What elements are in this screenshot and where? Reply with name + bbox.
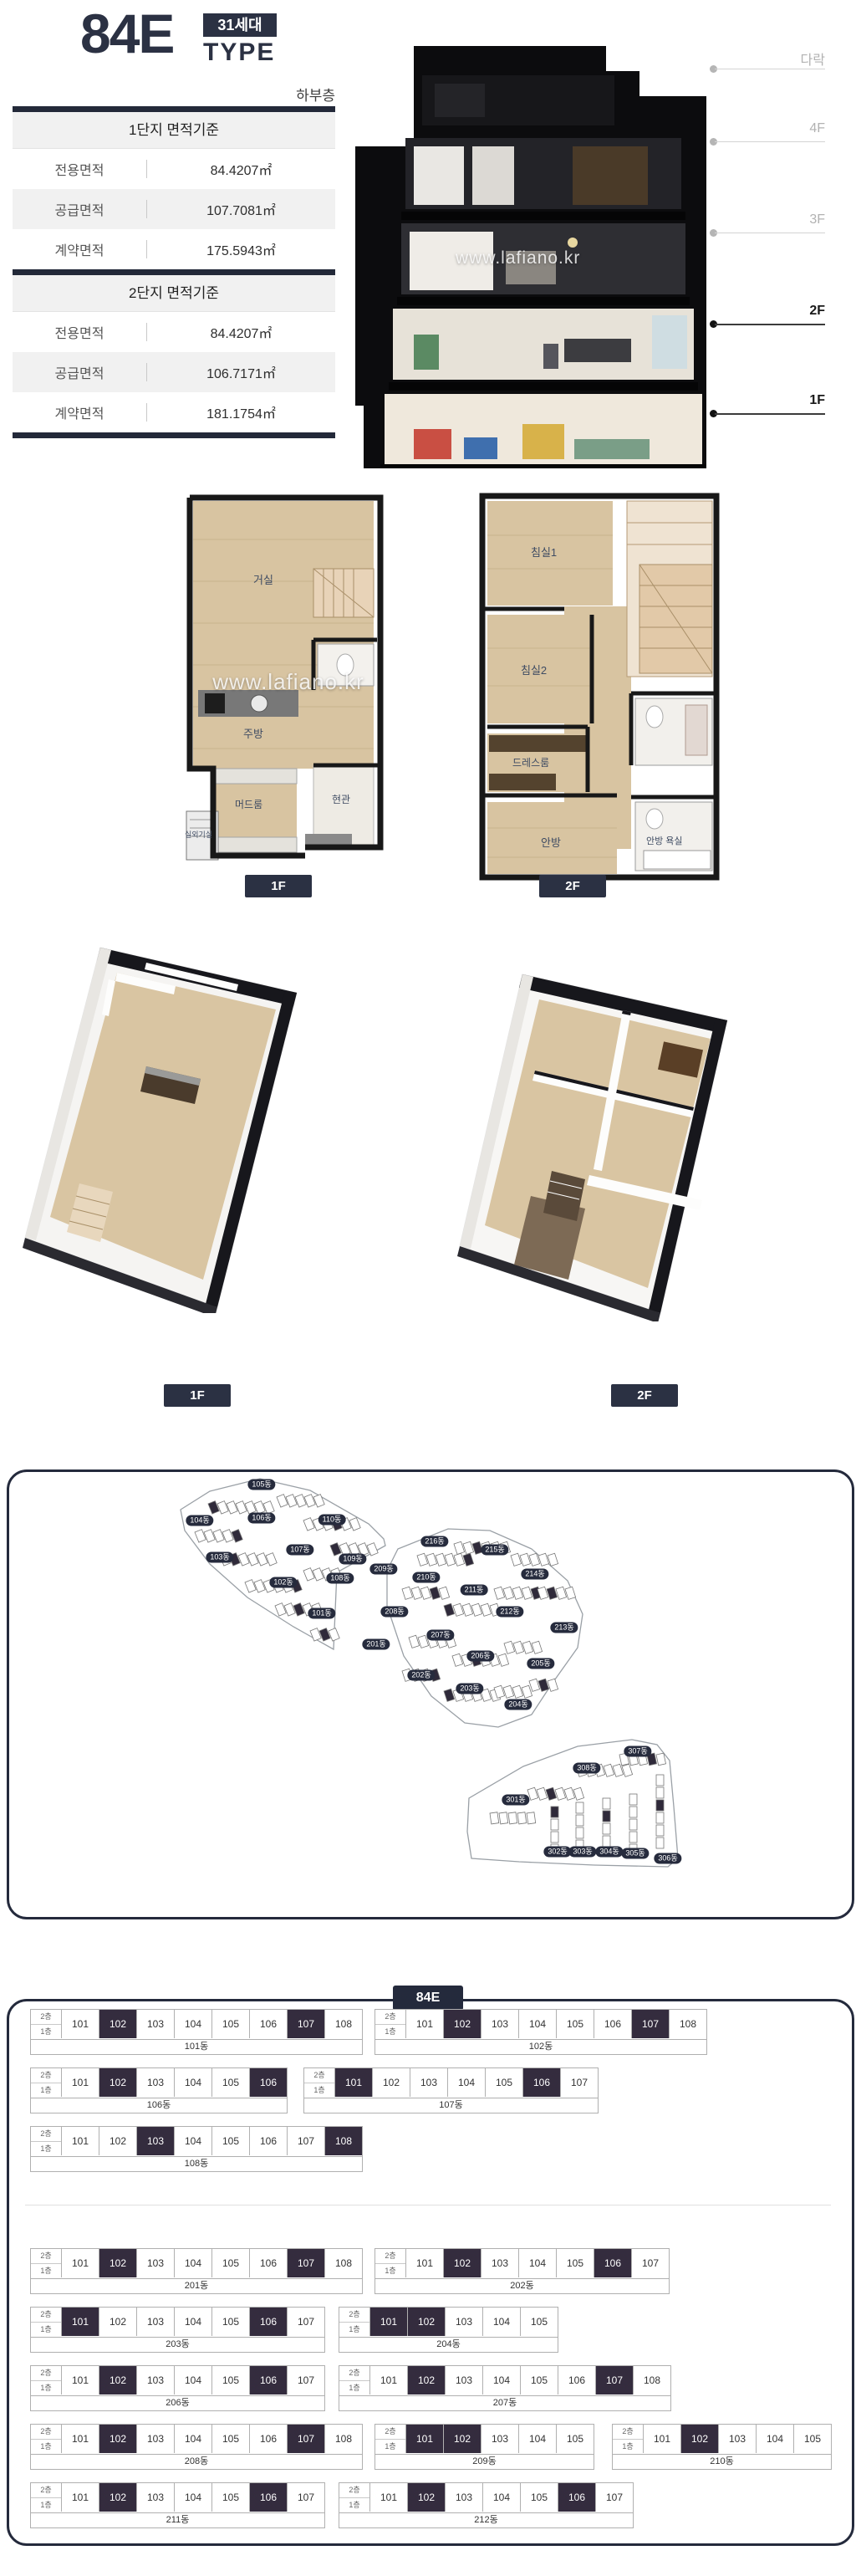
building-name: 107동 bbox=[304, 2098, 598, 2113]
unit-cell-108동-101: 101 bbox=[61, 2127, 99, 2155]
unit-cell-108동-103: 103 bbox=[136, 2127, 174, 2155]
building-name: 106동 bbox=[31, 2098, 287, 2113]
room-label-master: 안방 bbox=[541, 834, 561, 850]
site-map: 105동104동106동110동103동107동109동108동102동101동… bbox=[7, 1469, 854, 1919]
lower-floor-label: 하부층 bbox=[13, 84, 335, 105]
building-badge-105동: 105동 bbox=[247, 1480, 275, 1490]
unit-cell-108동-107: 107 bbox=[287, 2127, 324, 2155]
building-badge-101동: 101동 bbox=[308, 1608, 335, 1619]
building-badge-303동: 303동 bbox=[568, 1847, 596, 1858]
floorplan-2d-2f: 침실1 침실2 드레스룸 안방 안방 욕실 bbox=[472, 489, 727, 884]
unit-table-211동: 2층1층101102103104105106107211동 bbox=[30, 2482, 325, 2528]
unit-cell-106동-106: 106 bbox=[249, 2068, 287, 2097]
area-label: 전용면적 bbox=[13, 159, 146, 179]
floorplan-2d-1f: 거실 주방 머드룸 실외기실 현관 www.lafiano.kr bbox=[180, 489, 389, 882]
unit-cell-102동-105: 105 bbox=[556, 2010, 594, 2038]
type-label: TYPE bbox=[203, 38, 275, 67]
table-bottom-bar bbox=[13, 432, 335, 438]
building-badge-305동: 305동 bbox=[621, 1848, 649, 1859]
unit-cell-101동-104: 104 bbox=[174, 2010, 211, 2038]
unit-cell-212동-105: 105 bbox=[520, 2483, 558, 2512]
unit-cell-108동-105: 105 bbox=[211, 2127, 249, 2155]
floorplan-3d-2f bbox=[451, 962, 853, 1321]
building-badge-302동: 302동 bbox=[543, 1847, 571, 1858]
building-badge-208동: 208동 bbox=[380, 1607, 408, 1618]
unit-cell-206동-103: 103 bbox=[136, 2366, 174, 2395]
unit-table-201동: 2층1층101102103104105106107108201동 bbox=[30, 2248, 363, 2294]
unit-cell-203동-105: 105 bbox=[211, 2308, 249, 2336]
area-label: 공급면적 bbox=[13, 362, 146, 382]
building-badge-304동: 304동 bbox=[595, 1847, 623, 1858]
floor-labels: 2층1층 bbox=[375, 2010, 405, 2039]
unit-cell-210동-103: 103 bbox=[718, 2425, 756, 2453]
unit-cell-201동-103: 103 bbox=[136, 2249, 174, 2277]
unit-table-203동: 2층1층101102103104105106107203동 bbox=[30, 2307, 325, 2353]
floor-labels: 2층1층 bbox=[31, 2068, 61, 2098]
building-badge-106동: 106동 bbox=[247, 1513, 275, 1524]
unit-cell-202동-102: 102 bbox=[443, 2249, 481, 2277]
unit-cell-101동-107: 107 bbox=[287, 2010, 324, 2038]
unit-table-202동: 2층1층101102103104105106107202동 bbox=[374, 2248, 670, 2294]
unit-cell-204동-102: 102 bbox=[407, 2308, 445, 2336]
area-value: 181.1754㎡ bbox=[147, 402, 335, 422]
unit-count-badge: 31세대 bbox=[203, 13, 277, 37]
unit-table-208동: 2층1층101102103104105106107108208동 bbox=[30, 2424, 363, 2470]
area-value: 106.7171㎡ bbox=[147, 362, 335, 382]
floorplan-2f-drawing bbox=[472, 489, 727, 884]
unit-table-107동: 2층1층101102103104105106107107동 bbox=[303, 2067, 599, 2113]
room-label-entrance: 현관 bbox=[332, 792, 350, 806]
building-name: 108동 bbox=[31, 2156, 362, 2171]
unit-cell-212동-104: 104 bbox=[482, 2483, 520, 2512]
unit-cell-206동-101: 101 bbox=[61, 2366, 99, 2395]
floor-labels: 2층1층 bbox=[31, 2010, 61, 2039]
floor-labels: 2층1층 bbox=[304, 2068, 334, 2098]
building-badge-202동: 202동 bbox=[407, 1670, 435, 1681]
area-table: 1단지 면적기준 전용면적84.4207㎡ 공급면적107.7081㎡ 계약면적… bbox=[13, 106, 335, 438]
unit-cell-106동-104: 104 bbox=[174, 2068, 211, 2097]
unit-cell-102동-107: 107 bbox=[631, 2010, 669, 2038]
area-value: 175.5943㎡ bbox=[147, 239, 335, 259]
unit-cell-207동-106: 106 bbox=[558, 2366, 595, 2395]
area-heading-complex1: 1단지 면적기준 bbox=[13, 112, 335, 149]
building-badge-109동: 109동 bbox=[339, 1554, 366, 1565]
unit-cell-208동-104: 104 bbox=[174, 2425, 211, 2453]
unit-cell-204동-101: 101 bbox=[369, 2308, 407, 2336]
watermark: www.lafiano.kr bbox=[171, 669, 405, 695]
building-name: 210동 bbox=[613, 2454, 831, 2469]
floor-labels: 2층1층 bbox=[31, 2127, 61, 2156]
floor-labels: 2층1층 bbox=[31, 2483, 61, 2512]
room-label-dress: 드레스룸 bbox=[512, 755, 549, 769]
building-badge-210동: 210동 bbox=[412, 1572, 440, 1583]
plan-2f-badge: 2F bbox=[539, 875, 606, 897]
plan-1f-badge: 1F bbox=[245, 875, 312, 897]
unit-cell-201동-107: 107 bbox=[287, 2249, 324, 2277]
room-label-master-bath: 안방 욕실 bbox=[646, 834, 683, 847]
unit-table-212동: 2층1층101102103104105106107212동 bbox=[339, 2482, 634, 2528]
building-badge-213동: 213동 bbox=[550, 1623, 578, 1633]
unit-cell-211동-101: 101 bbox=[61, 2483, 99, 2512]
building-badge-107동: 107동 bbox=[286, 1545, 313, 1556]
building-name: 211동 bbox=[31, 2512, 324, 2527]
building-badge-215동: 215동 bbox=[481, 1545, 508, 1556]
unit-table-204동: 2층1층101102103104105204동 bbox=[339, 2307, 558, 2353]
unit-cell-203동-104: 104 bbox=[174, 2308, 211, 2336]
unit-cell-208동-102: 102 bbox=[99, 2425, 136, 2453]
building-badge-206동: 206동 bbox=[466, 1651, 494, 1662]
unit-cell-203동-102: 102 bbox=[99, 2308, 136, 2336]
unit-cell-108동-106: 106 bbox=[249, 2127, 287, 2155]
room-label-bed2: 침실2 bbox=[521, 662, 547, 677]
unit-cell-212동-101: 101 bbox=[369, 2483, 407, 2512]
unit-cell-211동-107: 107 bbox=[287, 2483, 324, 2512]
area-value: 84.4207㎡ bbox=[147, 322, 335, 342]
building-badge-201동: 201동 bbox=[362, 1639, 390, 1650]
unit-cell-207동-102: 102 bbox=[407, 2366, 445, 2395]
floor-labels: 2층1층 bbox=[31, 2249, 61, 2278]
building-badge-110동: 110동 bbox=[318, 1515, 346, 1526]
unit-cell-206동-107: 107 bbox=[287, 2366, 324, 2395]
building-name: 204동 bbox=[339, 2337, 558, 2352]
building-badge-214동: 214동 bbox=[521, 1569, 548, 1580]
unit-table-206동: 2층1층101102103104105106107206동 bbox=[30, 2365, 325, 2411]
watermark: www.lafiano.kr bbox=[456, 248, 580, 268]
floor-labels: 2층1층 bbox=[375, 2425, 405, 2454]
building-badge-307동: 307동 bbox=[624, 1746, 651, 1757]
unit-cell-206동-105: 105 bbox=[211, 2366, 249, 2395]
unit-cell-208동-103: 103 bbox=[136, 2425, 174, 2453]
unit-cell-106동-101: 101 bbox=[61, 2068, 99, 2097]
building-name: 102동 bbox=[375, 2039, 706, 2054]
floor-level-다락: 다락 bbox=[706, 49, 832, 74]
unit-cell-202동-101: 101 bbox=[405, 2249, 443, 2277]
unit-cell-207동-108: 108 bbox=[633, 2366, 670, 2395]
unit-cell-203동-103: 103 bbox=[136, 2308, 174, 2336]
building-badge-209동: 209동 bbox=[369, 1564, 397, 1575]
unit-cell-203동-106: 106 bbox=[249, 2308, 287, 2336]
unit-table-210동: 2층1층101102103104105210동 bbox=[612, 2424, 832, 2470]
unit-cell-209동-105: 105 bbox=[556, 2425, 594, 2453]
building-badge-216동: 216동 bbox=[420, 1536, 448, 1547]
unit-cell-101동-106: 106 bbox=[249, 2010, 287, 2038]
page: 84E 31세대 TYPE 하부층 1단지 면적기준 전용면적84.4207㎡ … bbox=[0, 0, 856, 2576]
unit-cell-202동-105: 105 bbox=[556, 2249, 594, 2277]
unit-cell-211동-106: 106 bbox=[249, 2483, 287, 2512]
unit-cell-212동-107: 107 bbox=[595, 2483, 633, 2512]
floor-labels: 2층1층 bbox=[31, 2366, 61, 2395]
floorplan-3d-1f bbox=[21, 941, 401, 1313]
building-badge-301동: 301동 bbox=[502, 1795, 529, 1806]
unit-cell-106동-102: 102 bbox=[99, 2068, 136, 2097]
unit-cell-212동-102: 102 bbox=[407, 2483, 445, 2512]
unit-cell-202동-103: 103 bbox=[481, 2249, 518, 2277]
unit-cell-101동-102: 102 bbox=[99, 2010, 136, 2038]
unit-cell-210동-104: 104 bbox=[756, 2425, 793, 2453]
area-label: 공급면적 bbox=[13, 199, 146, 219]
unit-cell-107동-102: 102 bbox=[372, 2068, 410, 2097]
room-label-mudroom: 머드룸 bbox=[235, 797, 262, 811]
building-badge-306동: 306동 bbox=[654, 1853, 681, 1864]
building-badge-205동: 205동 bbox=[527, 1659, 554, 1669]
unit-cell-211동-102: 102 bbox=[99, 2483, 136, 2512]
unit-cell-208동-106: 106 bbox=[249, 2425, 287, 2453]
unit-table-106동: 2층1층101102103104105106106동 bbox=[30, 2067, 288, 2113]
unit-table-209동: 2층1층101102103104105209동 bbox=[374, 2424, 594, 2470]
unit-cell-203동-107: 107 bbox=[287, 2308, 324, 2336]
unit-cell-208동-101: 101 bbox=[61, 2425, 99, 2453]
building-name: 206동 bbox=[31, 2395, 324, 2410]
unit-cell-204동-105: 105 bbox=[520, 2308, 558, 2336]
unit-cell-106동-105: 105 bbox=[211, 2068, 249, 2097]
unit-cell-204동-103: 103 bbox=[445, 2308, 482, 2336]
floor-labels: 2층1층 bbox=[613, 2425, 643, 2454]
building-badge-104동: 104동 bbox=[186, 1515, 213, 1526]
room-label-outdoor-unit: 실외기실 bbox=[185, 829, 212, 840]
area-label: 계약면적 bbox=[13, 402, 146, 422]
unit-cell-206동-106: 106 bbox=[249, 2366, 287, 2395]
unit-cell-202동-107: 107 bbox=[631, 2249, 669, 2277]
unit-cell-206동-102: 102 bbox=[99, 2366, 136, 2395]
floor-labels: 2층1층 bbox=[339, 2483, 369, 2512]
unit-cell-207동-103: 103 bbox=[445, 2366, 482, 2395]
building-badge-203동: 203동 bbox=[456, 1684, 483, 1694]
floor-labels: 2층1층 bbox=[339, 2308, 369, 2337]
unit-cell-107동-104: 104 bbox=[447, 2068, 485, 2097]
unit-cell-212동-103: 103 bbox=[445, 2483, 482, 2512]
unit-cell-201동-106: 106 bbox=[249, 2249, 287, 2277]
unit-cell-101동-101: 101 bbox=[61, 2010, 99, 2038]
unit-cell-101동-105: 105 bbox=[211, 2010, 249, 2038]
page-title: 84E bbox=[80, 2, 173, 65]
unit-table-102동: 2층1층101102103104105106107108102동 bbox=[374, 2009, 707, 2055]
table-top-bar bbox=[13, 106, 335, 112]
building-badge-102동: 102동 bbox=[269, 1577, 297, 1588]
floor-labels: 2층1층 bbox=[31, 2308, 61, 2337]
unit-cell-208동-105: 105 bbox=[211, 2425, 249, 2453]
floor-level-2F: 2F bbox=[706, 304, 832, 329]
unit-cell-208동-108: 108 bbox=[324, 2425, 362, 2453]
unit-cell-108동-104: 104 bbox=[174, 2127, 211, 2155]
unit-cell-107동-106: 106 bbox=[522, 2068, 560, 2097]
unit-cell-209동-101: 101 bbox=[405, 2425, 443, 2453]
floor-labels: 2층1층 bbox=[375, 2249, 405, 2278]
building-name: 203동 bbox=[31, 2337, 324, 2352]
unit-cell-210동-105: 105 bbox=[793, 2425, 831, 2453]
unit-cell-209동-104: 104 bbox=[518, 2425, 556, 2453]
unit-cell-211동-103: 103 bbox=[136, 2483, 174, 2512]
unit-cell-209동-102: 102 bbox=[443, 2425, 481, 2453]
unit-cell-102동-101: 101 bbox=[405, 2010, 443, 2038]
unit-cell-207동-105: 105 bbox=[520, 2366, 558, 2395]
building-name: 202동 bbox=[375, 2278, 669, 2293]
unit-cell-102동-102: 102 bbox=[443, 2010, 481, 2038]
floor-level-4F: 4F bbox=[706, 121, 832, 146]
unit-cell-207동-104: 104 bbox=[482, 2366, 520, 2395]
unit-table-101동: 2층1층101102103104105106107108101동 bbox=[30, 2009, 363, 2055]
building-badge-211동: 211동 bbox=[461, 1585, 488, 1596]
room-label-bed1: 침실1 bbox=[531, 544, 557, 560]
area-label: 전용면적 bbox=[13, 322, 146, 342]
availability-title-badge: 84E bbox=[393, 1986, 463, 2011]
floor-level-1F: 1F bbox=[706, 393, 832, 418]
unit-cell-209동-103: 103 bbox=[481, 2425, 518, 2453]
unit-cell-101동-103: 103 bbox=[136, 2010, 174, 2038]
building-name: 212동 bbox=[339, 2512, 633, 2527]
floor-labels: 2층1층 bbox=[339, 2366, 369, 2395]
unit-cell-106동-103: 103 bbox=[136, 2068, 174, 2097]
unit-cell-202동-106: 106 bbox=[594, 2249, 631, 2277]
floor-level-3F: 3F bbox=[706, 212, 832, 238]
unit-cell-212동-106: 106 bbox=[558, 2483, 595, 2512]
unit-cell-210동-102: 102 bbox=[680, 2425, 718, 2453]
building-badge-308동: 308동 bbox=[573, 1763, 600, 1774]
area-value: 84.4207㎡ bbox=[147, 159, 335, 179]
unit-cell-207동-101: 101 bbox=[369, 2366, 407, 2395]
area-heading-complex2: 2단지 면적기준 bbox=[13, 275, 335, 312]
unit-cell-203동-101: 101 bbox=[61, 2308, 99, 2336]
unit-cell-211동-104: 104 bbox=[174, 2483, 211, 2512]
availability-divider bbox=[25, 2205, 831, 2205]
unit-cell-204동-104: 104 bbox=[482, 2308, 520, 2336]
unit-cell-207동-107: 107 bbox=[595, 2366, 633, 2395]
unit-cell-201동-108: 108 bbox=[324, 2249, 362, 2277]
unit-cell-211동-105: 105 bbox=[211, 2483, 249, 2512]
building-badge-103동: 103동 bbox=[206, 1552, 233, 1563]
building-name: 201동 bbox=[31, 2278, 362, 2293]
building-name: 207동 bbox=[339, 2395, 670, 2410]
building-name: 208동 bbox=[31, 2454, 362, 2469]
building-section-image: www.lafiano.kr bbox=[355, 46, 706, 468]
room-label-kitchen: 주방 bbox=[243, 725, 263, 741]
unit-cell-108동-102: 102 bbox=[99, 2127, 136, 2155]
unit-cell-102동-108: 108 bbox=[669, 2010, 706, 2038]
unit-table-108동: 2층1층101102103104105106107108108동 bbox=[30, 2126, 363, 2172]
floor-labels: 2층1층 bbox=[31, 2425, 61, 2454]
unit-cell-102동-106: 106 bbox=[594, 2010, 631, 2038]
unit-cell-108동-108: 108 bbox=[324, 2127, 362, 2155]
unit-cell-107동-103: 103 bbox=[410, 2068, 447, 2097]
unit-cell-208동-107: 107 bbox=[287, 2425, 324, 2453]
unit-cell-201동-102: 102 bbox=[99, 2249, 136, 2277]
floor-level-legend: 다락4F3F2F1F bbox=[706, 46, 832, 468]
building-name: 209동 bbox=[375, 2454, 594, 2469]
unit-cell-102동-104: 104 bbox=[518, 2010, 556, 2038]
unit-cell-101동-108: 108 bbox=[324, 2010, 362, 2038]
unit-cell-107동-101: 101 bbox=[334, 2068, 372, 2097]
unit-table-207동: 2층1층101102103104105106107108207동 bbox=[339, 2365, 671, 2411]
unit-cell-107동-107: 107 bbox=[560, 2068, 598, 2097]
building-badge-207동: 207동 bbox=[426, 1630, 454, 1641]
unit-cell-206동-104: 104 bbox=[174, 2366, 211, 2395]
area-value: 107.7081㎡ bbox=[147, 199, 335, 219]
room-label-living: 거실 bbox=[253, 571, 273, 587]
unit-cell-210동-101: 101 bbox=[643, 2425, 680, 2453]
unit-cell-201동-105: 105 bbox=[211, 2249, 249, 2277]
unit-cell-201동-104: 104 bbox=[174, 2249, 211, 2277]
building-badge-204동: 204동 bbox=[504, 1699, 532, 1710]
plan3d-2f-badge: 2F bbox=[611, 1384, 678, 1407]
table-mid-bar bbox=[13, 269, 335, 275]
building-badge-108동: 108동 bbox=[326, 1573, 354, 1584]
unit-cell-102동-103: 103 bbox=[481, 2010, 518, 2038]
building-badge-212동: 212동 bbox=[496, 1607, 523, 1618]
area-label: 계약면적 bbox=[13, 239, 146, 259]
unit-cell-107동-105: 105 bbox=[485, 2068, 522, 2097]
unit-cell-201동-101: 101 bbox=[61, 2249, 99, 2277]
unit-cell-202동-104: 104 bbox=[518, 2249, 556, 2277]
building-name: 101동 bbox=[31, 2039, 362, 2054]
plan3d-1f-badge: 1F bbox=[164, 1384, 231, 1407]
